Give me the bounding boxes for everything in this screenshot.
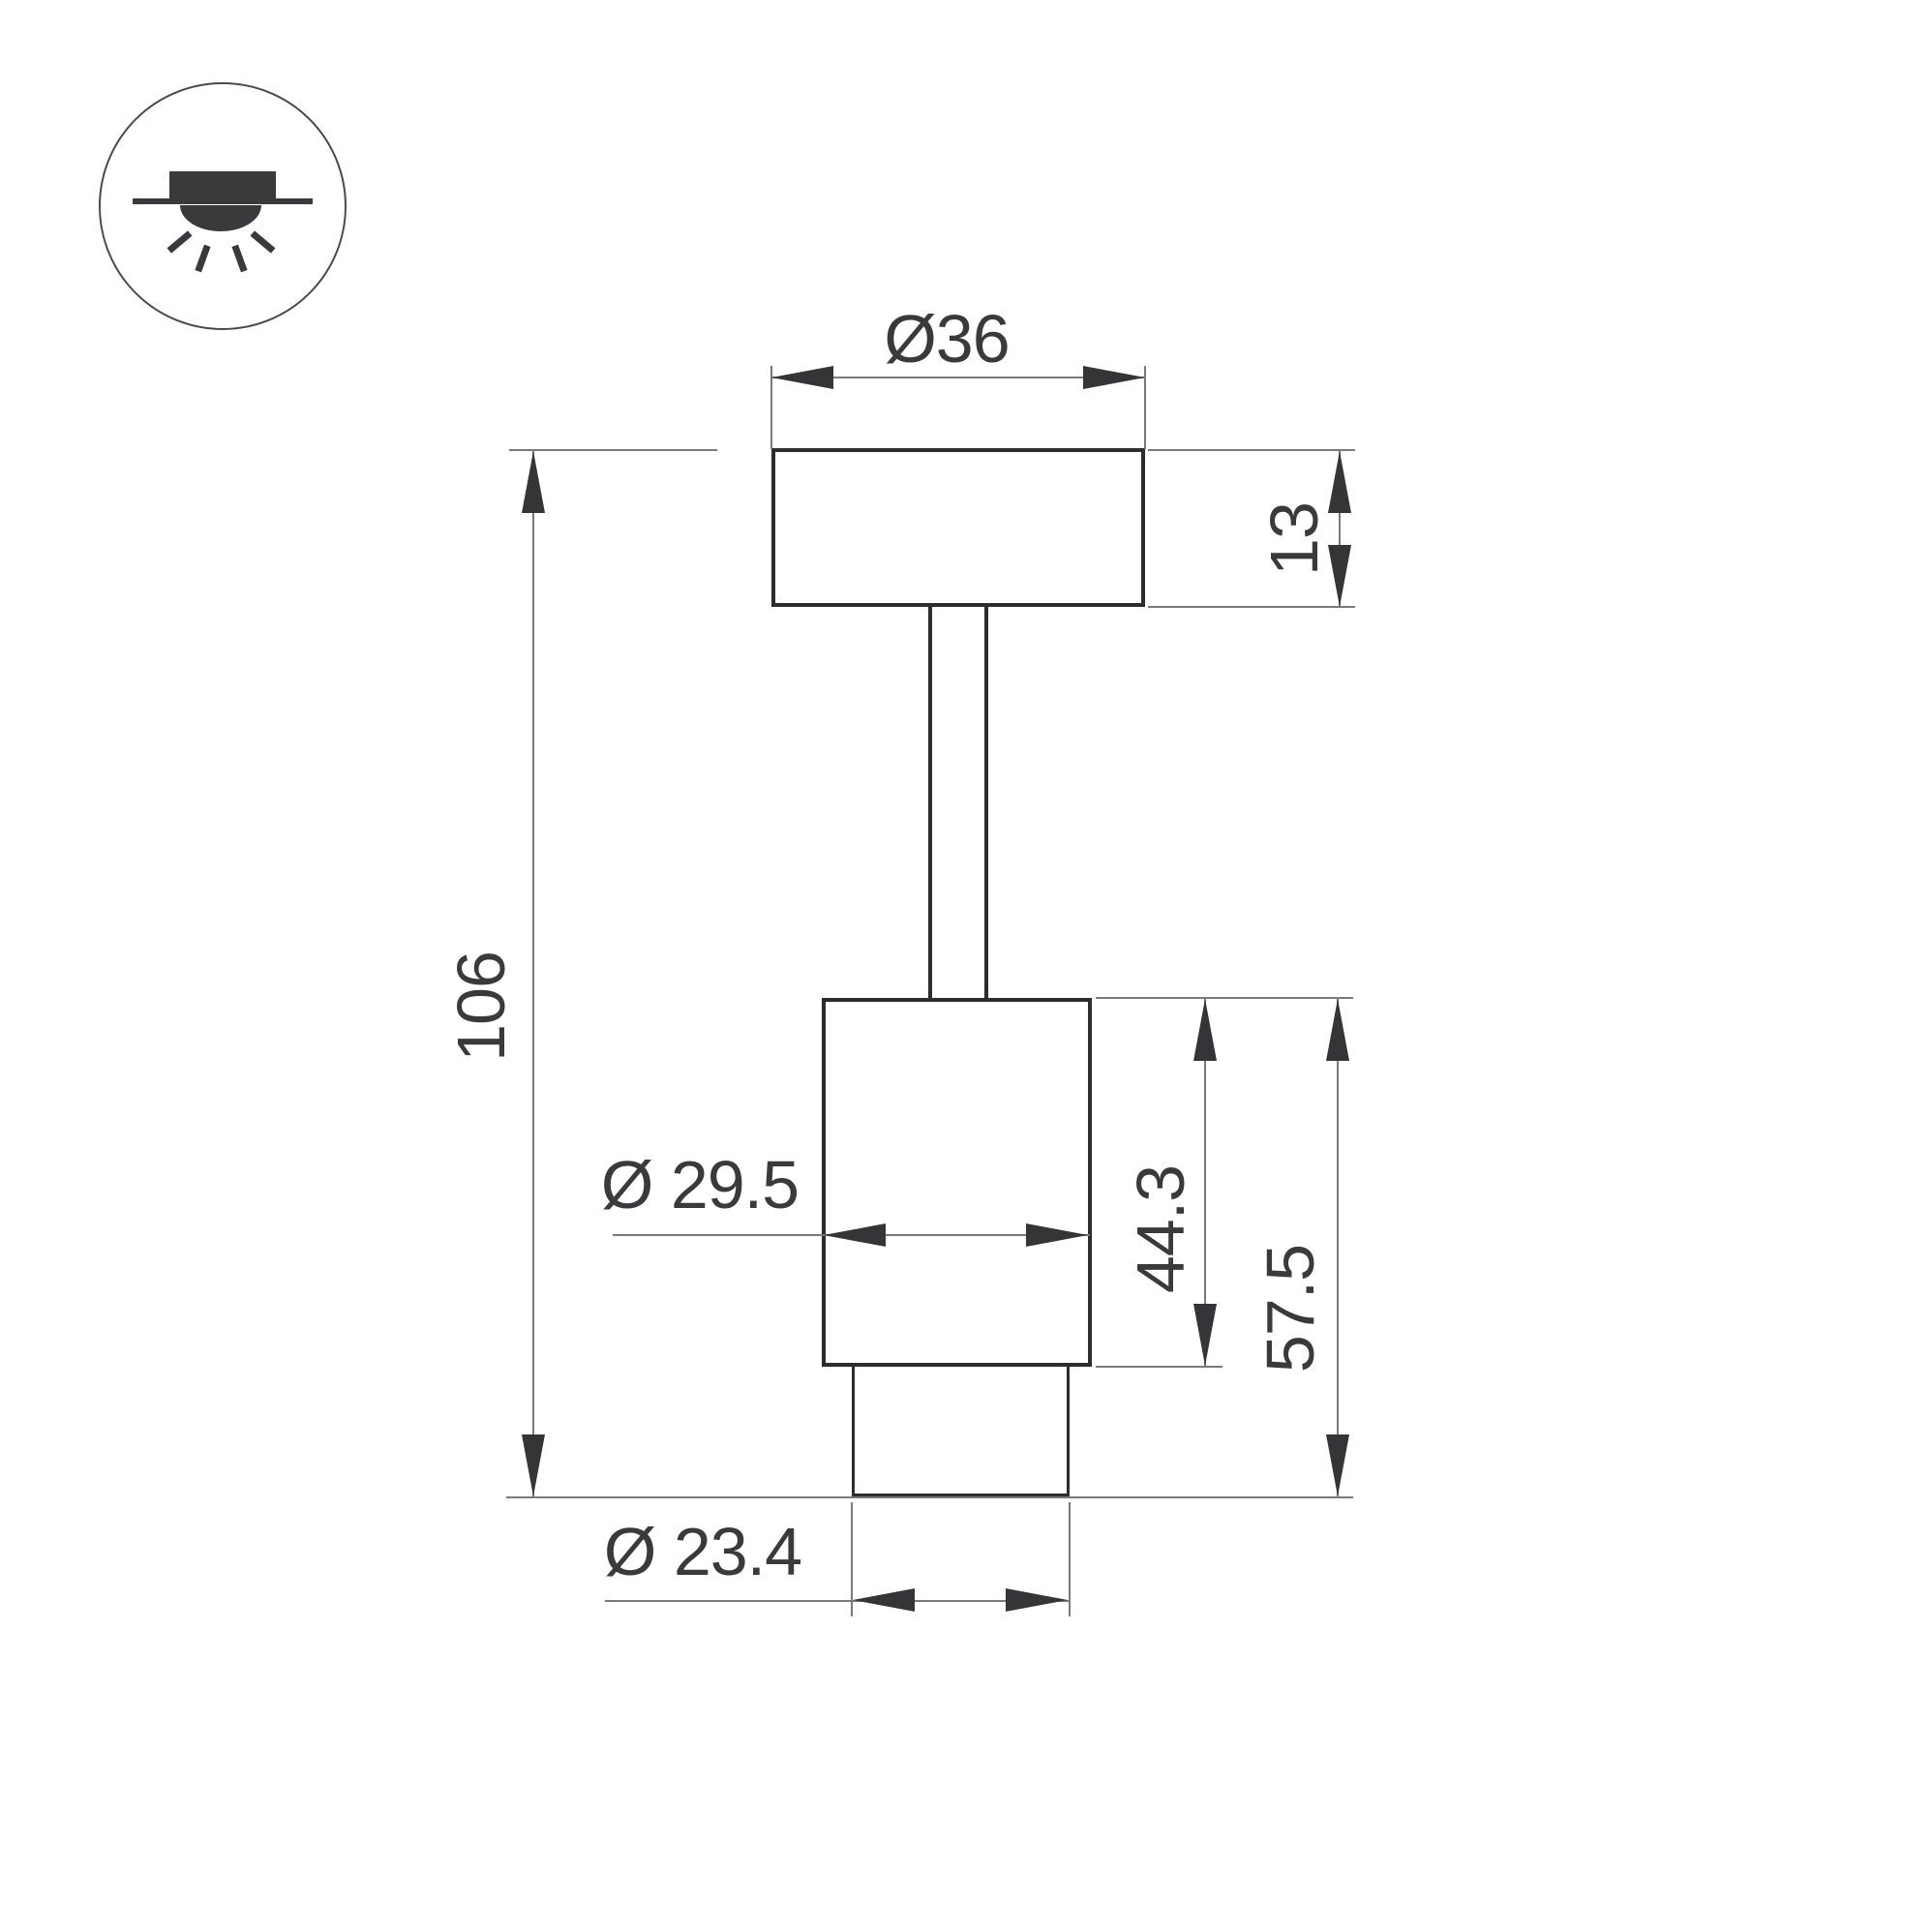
lamp-trim-outline (852, 1367, 1070, 1497)
arrowhead-up-icon (522, 451, 545, 513)
extension-line (509, 449, 717, 451)
dimension-label-top-diameter: Ø36 (850, 305, 1043, 373)
ceiling-plate-outline (771, 448, 1145, 607)
arrowhead-down-icon (1326, 1434, 1349, 1496)
dimension-label-trim-diameter: Ø 23.4 (558, 1518, 848, 1585)
arrowhead-up-icon (1326, 999, 1349, 1061)
extension-line (1148, 606, 1355, 608)
stem-left-line (928, 607, 932, 998)
leader-line (605, 1600, 1070, 1602)
dimension-label-lower-height: 57.5 (1256, 1202, 1324, 1415)
arrowhead-right-icon (1006, 1588, 1068, 1612)
arrowhead-down-icon (1193, 1304, 1217, 1366)
arrowhead-right-icon (1083, 366, 1145, 389)
stem-right-line (984, 607, 988, 998)
dimension-line (1337, 998, 1339, 1497)
dimension-line (532, 450, 534, 1497)
arrowhead-left-icon (853, 1588, 915, 1612)
lamp-housing-icon (169, 171, 276, 200)
extension-line (506, 1496, 1353, 1498)
arrowhead-left-icon (771, 366, 833, 389)
arrowhead-up-icon (1193, 999, 1217, 1061)
lamp-body-outline (822, 998, 1092, 1367)
dimension-label-overall-height: 106 (447, 910, 515, 1103)
extension-line (1148, 449, 1355, 451)
ceiling-line-icon (133, 198, 313, 204)
technical-drawing-canvas: Ø36 13 106 Ø 29.5 44.3 57 (0, 0, 1932, 1932)
arrowhead-down-icon (522, 1434, 545, 1496)
dimension-label-plate-thickness: 13 (1260, 481, 1328, 597)
dimension-label-body-diameter: Ø 29.5 (555, 1151, 845, 1219)
dimension-label-body-height: 44.3 (1127, 1123, 1194, 1336)
extension-line (1096, 997, 1353, 999)
